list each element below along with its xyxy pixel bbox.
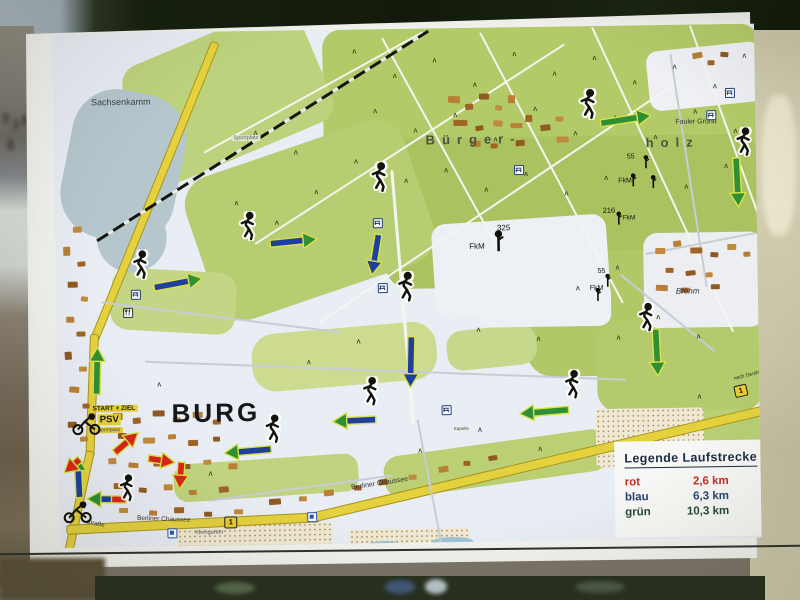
- restaurant-icon: [123, 308, 133, 318]
- map-area: [645, 41, 762, 112]
- legend-label: blau: [625, 491, 667, 504]
- picnic-table-icon: [373, 218, 383, 228]
- tree-icon: Λ: [393, 74, 397, 80]
- map-label: 216: [603, 206, 616, 215]
- building: [540, 124, 551, 131]
- map-label: holz: [646, 134, 700, 150]
- legend-row-gruen: grün 10,3 km: [625, 504, 761, 518]
- tree-icon: Λ: [576, 286, 580, 292]
- building: [720, 52, 728, 58]
- building: [493, 120, 502, 126]
- poi-icon: [167, 528, 177, 538]
- map-area: [692, 344, 762, 390]
- building: [66, 317, 74, 323]
- tree-icon: Λ: [713, 84, 717, 90]
- tree-icon: Λ: [307, 360, 311, 366]
- background-person: [13, 118, 19, 131]
- panel-wear-spot: [762, 95, 796, 235]
- building: [269, 498, 281, 505]
- legend-title: Legende Laufstrecke: [624, 450, 757, 469]
- building: [508, 95, 515, 103]
- building: [707, 60, 714, 65]
- tree-icon: Λ: [478, 428, 482, 434]
- background-person: [3, 112, 9, 124]
- tree-icon: Λ: [404, 179, 408, 185]
- building: [685, 270, 695, 276]
- tree-icon: Λ: [209, 472, 213, 478]
- building: [174, 507, 184, 513]
- picnic-table-icon: [378, 283, 388, 293]
- tree-icon: Λ: [684, 185, 688, 191]
- tree-icon: Λ: [476, 328, 480, 334]
- map-label: Sportplatz: [232, 135, 261, 141]
- tree-icon: Λ: [693, 109, 697, 115]
- building: [68, 282, 78, 288]
- map-label: Brehm: [676, 286, 700, 295]
- building: [80, 436, 89, 442]
- building: [119, 508, 128, 513]
- building: [228, 463, 237, 469]
- building: [81, 296, 89, 302]
- building: [188, 440, 198, 446]
- tree-icon: Λ: [697, 394, 701, 400]
- tree-icon: Λ: [633, 80, 637, 86]
- legend-row-rot: rot 2,6 km: [625, 474, 762, 488]
- picnic-table-icon: [514, 165, 524, 175]
- building: [108, 458, 116, 464]
- map-area: [643, 231, 762, 328]
- tree-icon: Λ: [604, 176, 608, 182]
- tree-icon: Λ: [453, 113, 457, 119]
- tree-icon: Λ: [742, 54, 746, 60]
- building: [479, 94, 489, 100]
- building: [555, 116, 563, 121]
- map-area: [445, 323, 539, 372]
- tree-icon: Λ: [352, 49, 356, 55]
- tree-icon: Λ: [564, 191, 568, 197]
- tree-icon: Λ: [235, 201, 239, 207]
- map-label: Bürger-: [426, 131, 522, 147]
- map-label: START + ZIEL: [91, 405, 138, 413]
- building: [139, 487, 147, 493]
- tree-icon: Λ: [592, 56, 596, 62]
- building: [153, 410, 165, 416]
- tree-icon: Λ: [553, 72, 557, 78]
- tree-icon: Λ: [354, 159, 358, 165]
- building: [655, 248, 665, 254]
- building: [525, 115, 532, 122]
- legend-label: grün: [625, 506, 667, 519]
- foreground-grass: [0, 558, 105, 600]
- tree-icon: Λ: [294, 150, 298, 156]
- building: [706, 272, 713, 277]
- building: [463, 461, 470, 466]
- building: [73, 227, 82, 233]
- building: [656, 285, 668, 291]
- tree-icon: Λ: [673, 65, 677, 71]
- building: [128, 462, 138, 468]
- building: [69, 386, 79, 393]
- tree-icon: Λ: [615, 266, 619, 272]
- legend-value: 6,3 km: [671, 490, 729, 503]
- tree-icon: Λ: [357, 339, 361, 345]
- map-label: Sachsenkamm: [91, 97, 151, 108]
- tree-icon: Λ: [314, 190, 318, 196]
- background-person: [7, 138, 14, 151]
- building: [666, 268, 674, 273]
- picnic-table-icon: [725, 88, 735, 98]
- tree-icon: Λ: [373, 109, 377, 115]
- poi-icon: [307, 512, 317, 522]
- building: [448, 96, 460, 104]
- building: [324, 489, 335, 496]
- picnic-table-icon: [131, 290, 141, 300]
- tree-icon: Λ: [574, 131, 578, 137]
- legend-value: 10,3 km: [671, 505, 729, 518]
- building: [213, 437, 220, 442]
- map-label: 55: [627, 153, 635, 160]
- building: [64, 352, 72, 361]
- building: [299, 496, 307, 501]
- tree-icon: Λ: [444, 168, 448, 174]
- legend-box: Legende Laufstrecke rot 2,6 km blau 6,3 …: [614, 439, 761, 538]
- tree-icon: Λ: [418, 449, 422, 455]
- background-person: [22, 114, 27, 126]
- building: [189, 490, 197, 495]
- building: [743, 252, 750, 257]
- tree-icon: Λ: [432, 58, 436, 64]
- building: [690, 247, 702, 253]
- building: [510, 123, 522, 128]
- route-map: ΛΛΛΛΛΛΛΛΛΛΛΛΛΛΛΛΛΛΛΛΛΛΛΛΛΛΛΛΛΛΛΛΛΛΛΛΛΛΛΛ…: [52, 24, 762, 548]
- building: [77, 261, 85, 267]
- map-label: BURG: [171, 397, 260, 429]
- tree-icon: Λ: [537, 337, 541, 343]
- map-label: Kapelle: [454, 426, 469, 431]
- map-label: FkM: [469, 242, 485, 251]
- tree-icon: Λ: [484, 188, 488, 194]
- building: [218, 486, 229, 493]
- tree-icon: Λ: [533, 107, 537, 113]
- tree-icon: Λ: [413, 129, 417, 135]
- building: [204, 512, 212, 517]
- building: [79, 367, 87, 372]
- building: [63, 247, 70, 256]
- building: [203, 459, 211, 465]
- picnic-table-icon: [442, 405, 452, 415]
- building: [711, 284, 720, 289]
- building: [234, 509, 243, 514]
- map-label: Kleingarten: [195, 530, 223, 536]
- building: [82, 403, 89, 408]
- tree-icon: Λ: [157, 382, 161, 388]
- tree-icon: Λ: [538, 447, 542, 453]
- tree-icon: Λ: [697, 334, 701, 340]
- legend-row-blau: blau 6,3 km: [625, 489, 762, 503]
- tree-icon: Λ: [473, 83, 477, 89]
- building: [495, 105, 503, 111]
- building: [557, 136, 569, 142]
- legend-label: rot: [625, 476, 667, 489]
- picnic-table-icon: [706, 110, 716, 120]
- tree-icon: Λ: [617, 336, 621, 342]
- road-shield-b1: 1: [224, 516, 237, 528]
- building: [673, 240, 682, 247]
- tree-icon: Λ: [512, 52, 516, 58]
- building: [727, 244, 736, 250]
- lower-sign-photo: [95, 576, 765, 600]
- building: [453, 120, 467, 126]
- legend-value: 2,6 km: [671, 475, 729, 488]
- tree-icon: Λ: [275, 221, 279, 227]
- building: [710, 252, 718, 258]
- building: [409, 475, 417, 480]
- building: [168, 434, 176, 440]
- photo-of-map-sign: ΛΛΛΛΛΛΛΛΛΛΛΛΛΛΛΛΛΛΛΛΛΛΛΛΛΛΛΛΛΛΛΛΛΛΛΛΛΛΛΛ…: [0, 0, 800, 600]
- building: [465, 103, 474, 110]
- building: [76, 332, 85, 337]
- tree-icon: Λ: [524, 172, 528, 178]
